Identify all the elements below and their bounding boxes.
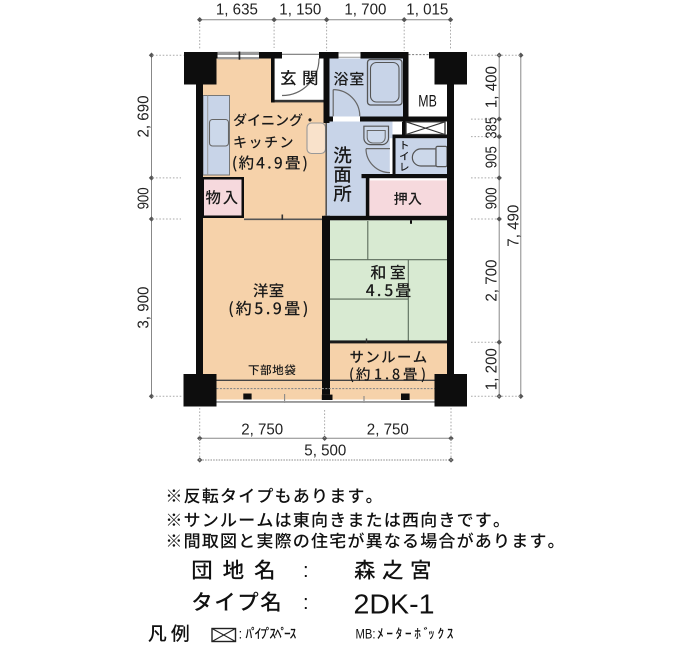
svg-text:3, 900: 3, 900 [135, 287, 152, 329]
svg-text:900: 900 [135, 187, 152, 209]
svg-text:1, 150: 1, 150 [279, 1, 321, 18]
svg-text:1, 400: 1, 400 [484, 66, 501, 108]
svg-text:905: 905 [484, 146, 501, 168]
svg-text:900: 900 [484, 187, 501, 209]
svg-text:5, 500: 5, 500 [304, 443, 346, 460]
svg-text:1, 015: 1, 015 [406, 1, 448, 18]
svg-text:7, 490: 7, 490 [505, 205, 522, 247]
svg-text:1, 635: 1, 635 [216, 1, 258, 18]
svg-text:385: 385 [484, 117, 501, 139]
svg-text::: : [239, 627, 243, 642]
svg-text:2DK-1: 2DK-1 [354, 589, 435, 620]
svg-text:MB:: MB: [356, 627, 376, 642]
svg-text:2, 750: 2, 750 [367, 421, 409, 438]
svg-text::: : [303, 560, 309, 582]
svg-text:MB: MB [418, 93, 437, 111]
svg-text:2, 750: 2, 750 [241, 421, 283, 438]
svg-text::: : [303, 592, 309, 614]
svg-text:2, 700: 2, 700 [484, 260, 501, 302]
svg-text:1, 700: 1, 700 [344, 1, 386, 18]
svg-text:1, 200: 1, 200 [484, 348, 501, 390]
svg-text:2, 690: 2, 690 [135, 95, 152, 137]
